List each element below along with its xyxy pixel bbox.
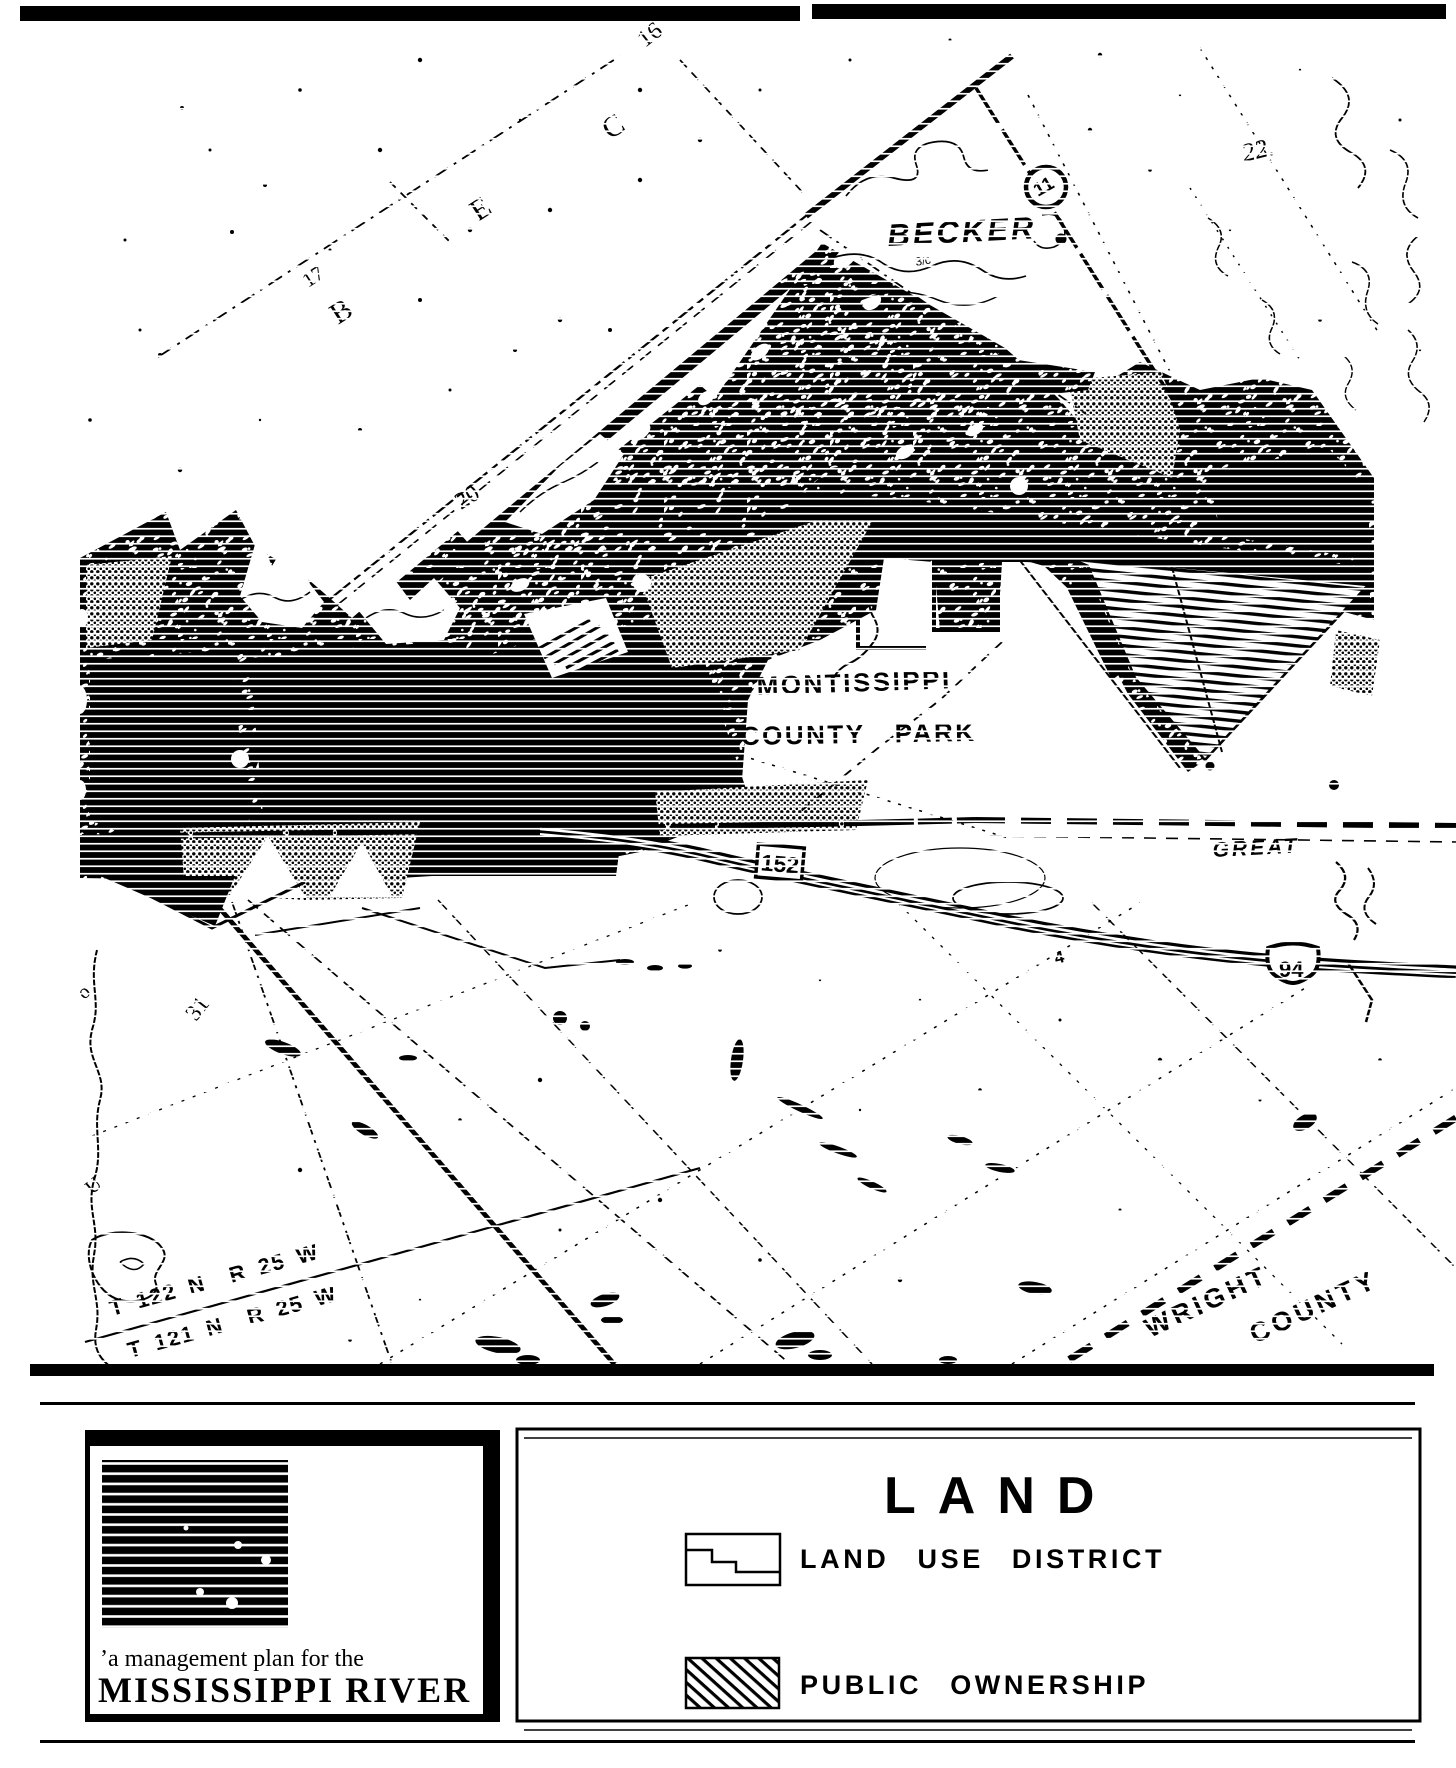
svg-text:PUBLIC OWNERSHIP: PUBLIC OWNERSHIP <box>800 1670 1149 1700</box>
svg-text:’a management plan for the: ’a management plan for the <box>100 1646 364 1672</box>
svg-text:LAND: LAND <box>884 1467 1116 1525</box>
svg-text:LAND USE DISTRICT: LAND USE DISTRICT <box>800 1544 1165 1574</box>
svg-text:MISSISSIPPI RIVER: MISSISSIPPI RIVER <box>98 1670 471 1710</box>
